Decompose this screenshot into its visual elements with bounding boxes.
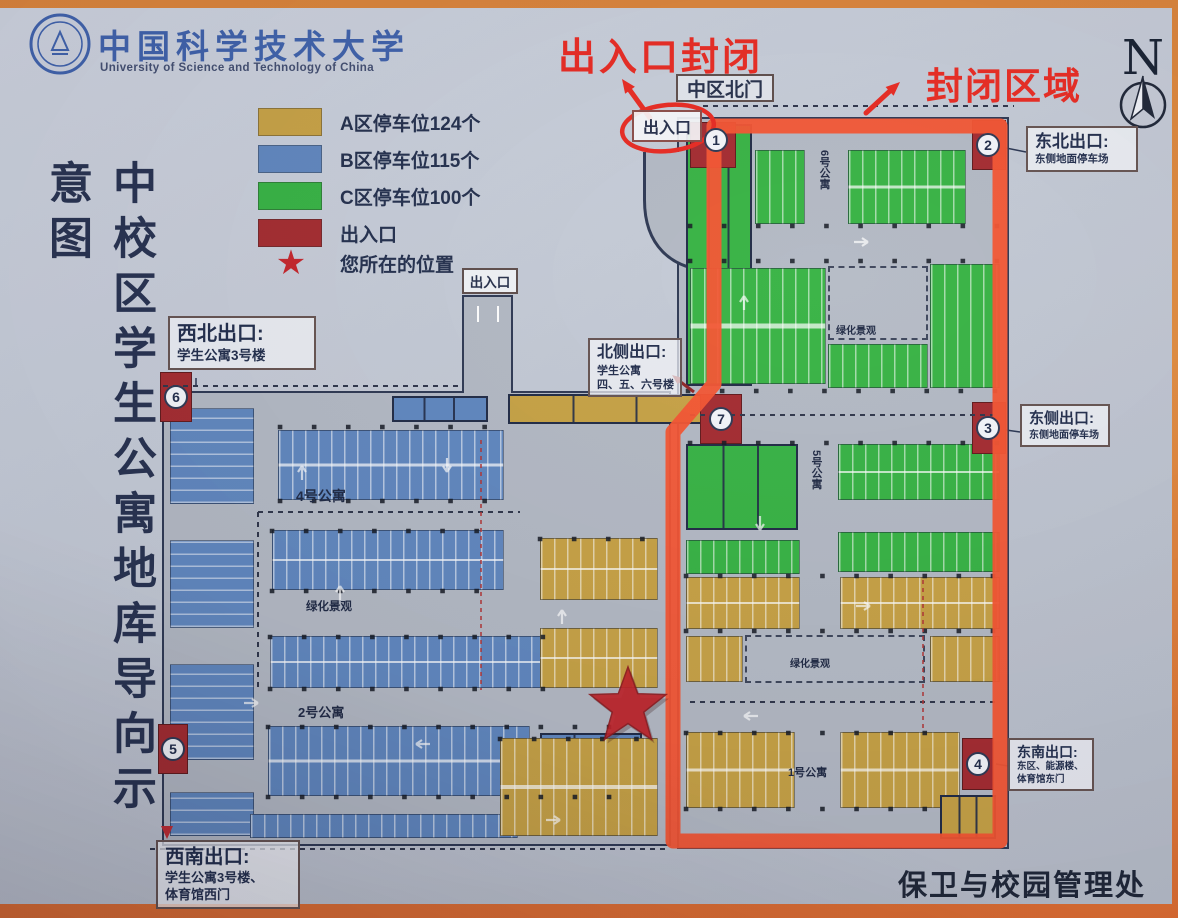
marker-number: 4 [974,756,982,772]
marker-number-7: 7 [709,407,733,431]
exit-line: 东侧地面停车场 [1035,153,1129,167]
zone-b-swatch [258,145,322,173]
dashed-boundaries [150,106,1014,849]
entrance-label-top: 出入口 [632,110,702,142]
marker-number-5: 5 [161,737,185,761]
building-label-apt5: 5号公寓 [808,450,824,510]
legend-label: C区停车位100个 [340,183,480,210]
exit-line: 学生公寓3号楼 [177,347,307,365]
marker-number: 3 [984,420,992,436]
entrance-text: 出入口 [470,271,511,291]
exit-title: 西南出口: [165,845,291,870]
entrance-swatch [258,219,322,247]
building-label-apt2: 2号公寓 [298,702,344,721]
annotation-arrow-closed-area [866,82,900,113]
exit-title: 西北出口: [177,321,307,347]
legend-label: 出入口 [340,220,397,247]
red-dashed-routes [481,440,923,730]
marker-number: 1 [712,132,720,148]
exit-title: 东北出口: [1035,131,1129,153]
gate-text: 中区北门 [687,75,763,102]
exit-label-northwest: 西北出口: 学生公寓3号楼 [168,316,316,370]
marker-number-4: 4 [966,752,990,776]
exit-label-east: 东侧出口: 东侧地面停车场 [1020,404,1110,447]
legend-label: A区停车位124个 [340,109,480,136]
building-label-apt4: 4号公寓 [296,486,346,506]
marker-number: 7 [717,411,725,427]
exit-line: 体育馆东门 [1017,774,1085,786]
legend-item-location: ★ 您所在的位置 [260,248,454,278]
exit-line: 四、五、六号楼 [597,378,673,392]
marker-number-6: 6 [164,385,188,409]
ustc-emblem [31,15,89,73]
legend-item-entrance: 出入口 [258,219,397,247]
road-arrows [244,238,870,824]
compass-n-label: N [1122,30,1164,86]
marker-number: 6 [172,389,180,405]
marker-number: 5 [169,741,177,757]
marker-number: 2 [984,137,992,153]
landscape-label-c: 绿化景观 [836,322,876,337]
legend-item-zone-a: A区停车位124个 [258,108,480,136]
exit-label-southwest: 西南出口: 学生公寓3号楼、 体育馆西门 [156,840,300,909]
exit-line: 学生公寓3号楼、 [165,870,291,887]
university-name-en: University of Science and Technology of … [100,62,374,74]
southwest-pointer [161,826,173,839]
department-signature: 保卫与校园管理处 [898,862,1146,904]
entrance-text: 出入口 [643,114,691,138]
marker-number-1: 1 [704,128,728,152]
exit-line: 学生公寓 [597,364,673,378]
annotation-closed-area: 封闭区域 [926,56,1082,110]
exit-title: 东南出口: [1017,743,1085,761]
landscape-label-b: 绿化景观 [306,598,352,614]
exit-title: 北侧出口: [597,343,673,364]
zone-a-swatch [258,108,322,136]
north-gate-label: 中区北门 [676,74,774,102]
zone-c-swatch [258,182,322,210]
ramp-lane-marks [478,306,498,322]
exit-line: 东侧地面停车场 [1029,429,1101,442]
university-name-cn: 中国科学技术大学 [98,20,410,68]
legend-item-zone-b: B区停车位115个 [258,145,479,173]
annotation-entrance-closed: 出入口封闭 [558,26,763,81]
exit-title: 东侧出口: [1029,409,1101,429]
garage-guide-sign-photo: 中国科学技术大学 University of Science and Techn… [0,0,1178,918]
legend-label: B区停车位115个 [340,146,479,173]
exit-label-northeast: 东北出口: 东侧地面停车场 [1026,126,1138,172]
floor-plan-overlay-layer [0,0,1178,918]
page-title: 中校区学生公寓地库导向示意图 [34,160,162,840]
exit-line: 东区、能源楼、 [1017,761,1085,773]
building-label-apt6: 6号公寓 [816,150,832,210]
star-icon: ★ [260,248,322,278]
building-label-apt1: 1号公寓 [788,764,827,780]
exit-label-north: 北侧出口: 学生公寓 四、五、六号楼 [588,338,682,397]
exit-line: 体育馆西门 [165,887,291,904]
legend-label: 您所在的位置 [340,250,454,277]
legend-item-zone-c: C区停车位100个 [258,182,480,210]
exit-label-southeast: 东南出口: 东区、能源楼、 体育馆东门 [1008,738,1094,791]
entrance-label-west: 出入口 [462,268,518,294]
marker-number-3: 3 [976,416,1000,440]
marker-number-2: 2 [976,133,1000,157]
landscape-label-a: 绿化景观 [790,655,830,670]
